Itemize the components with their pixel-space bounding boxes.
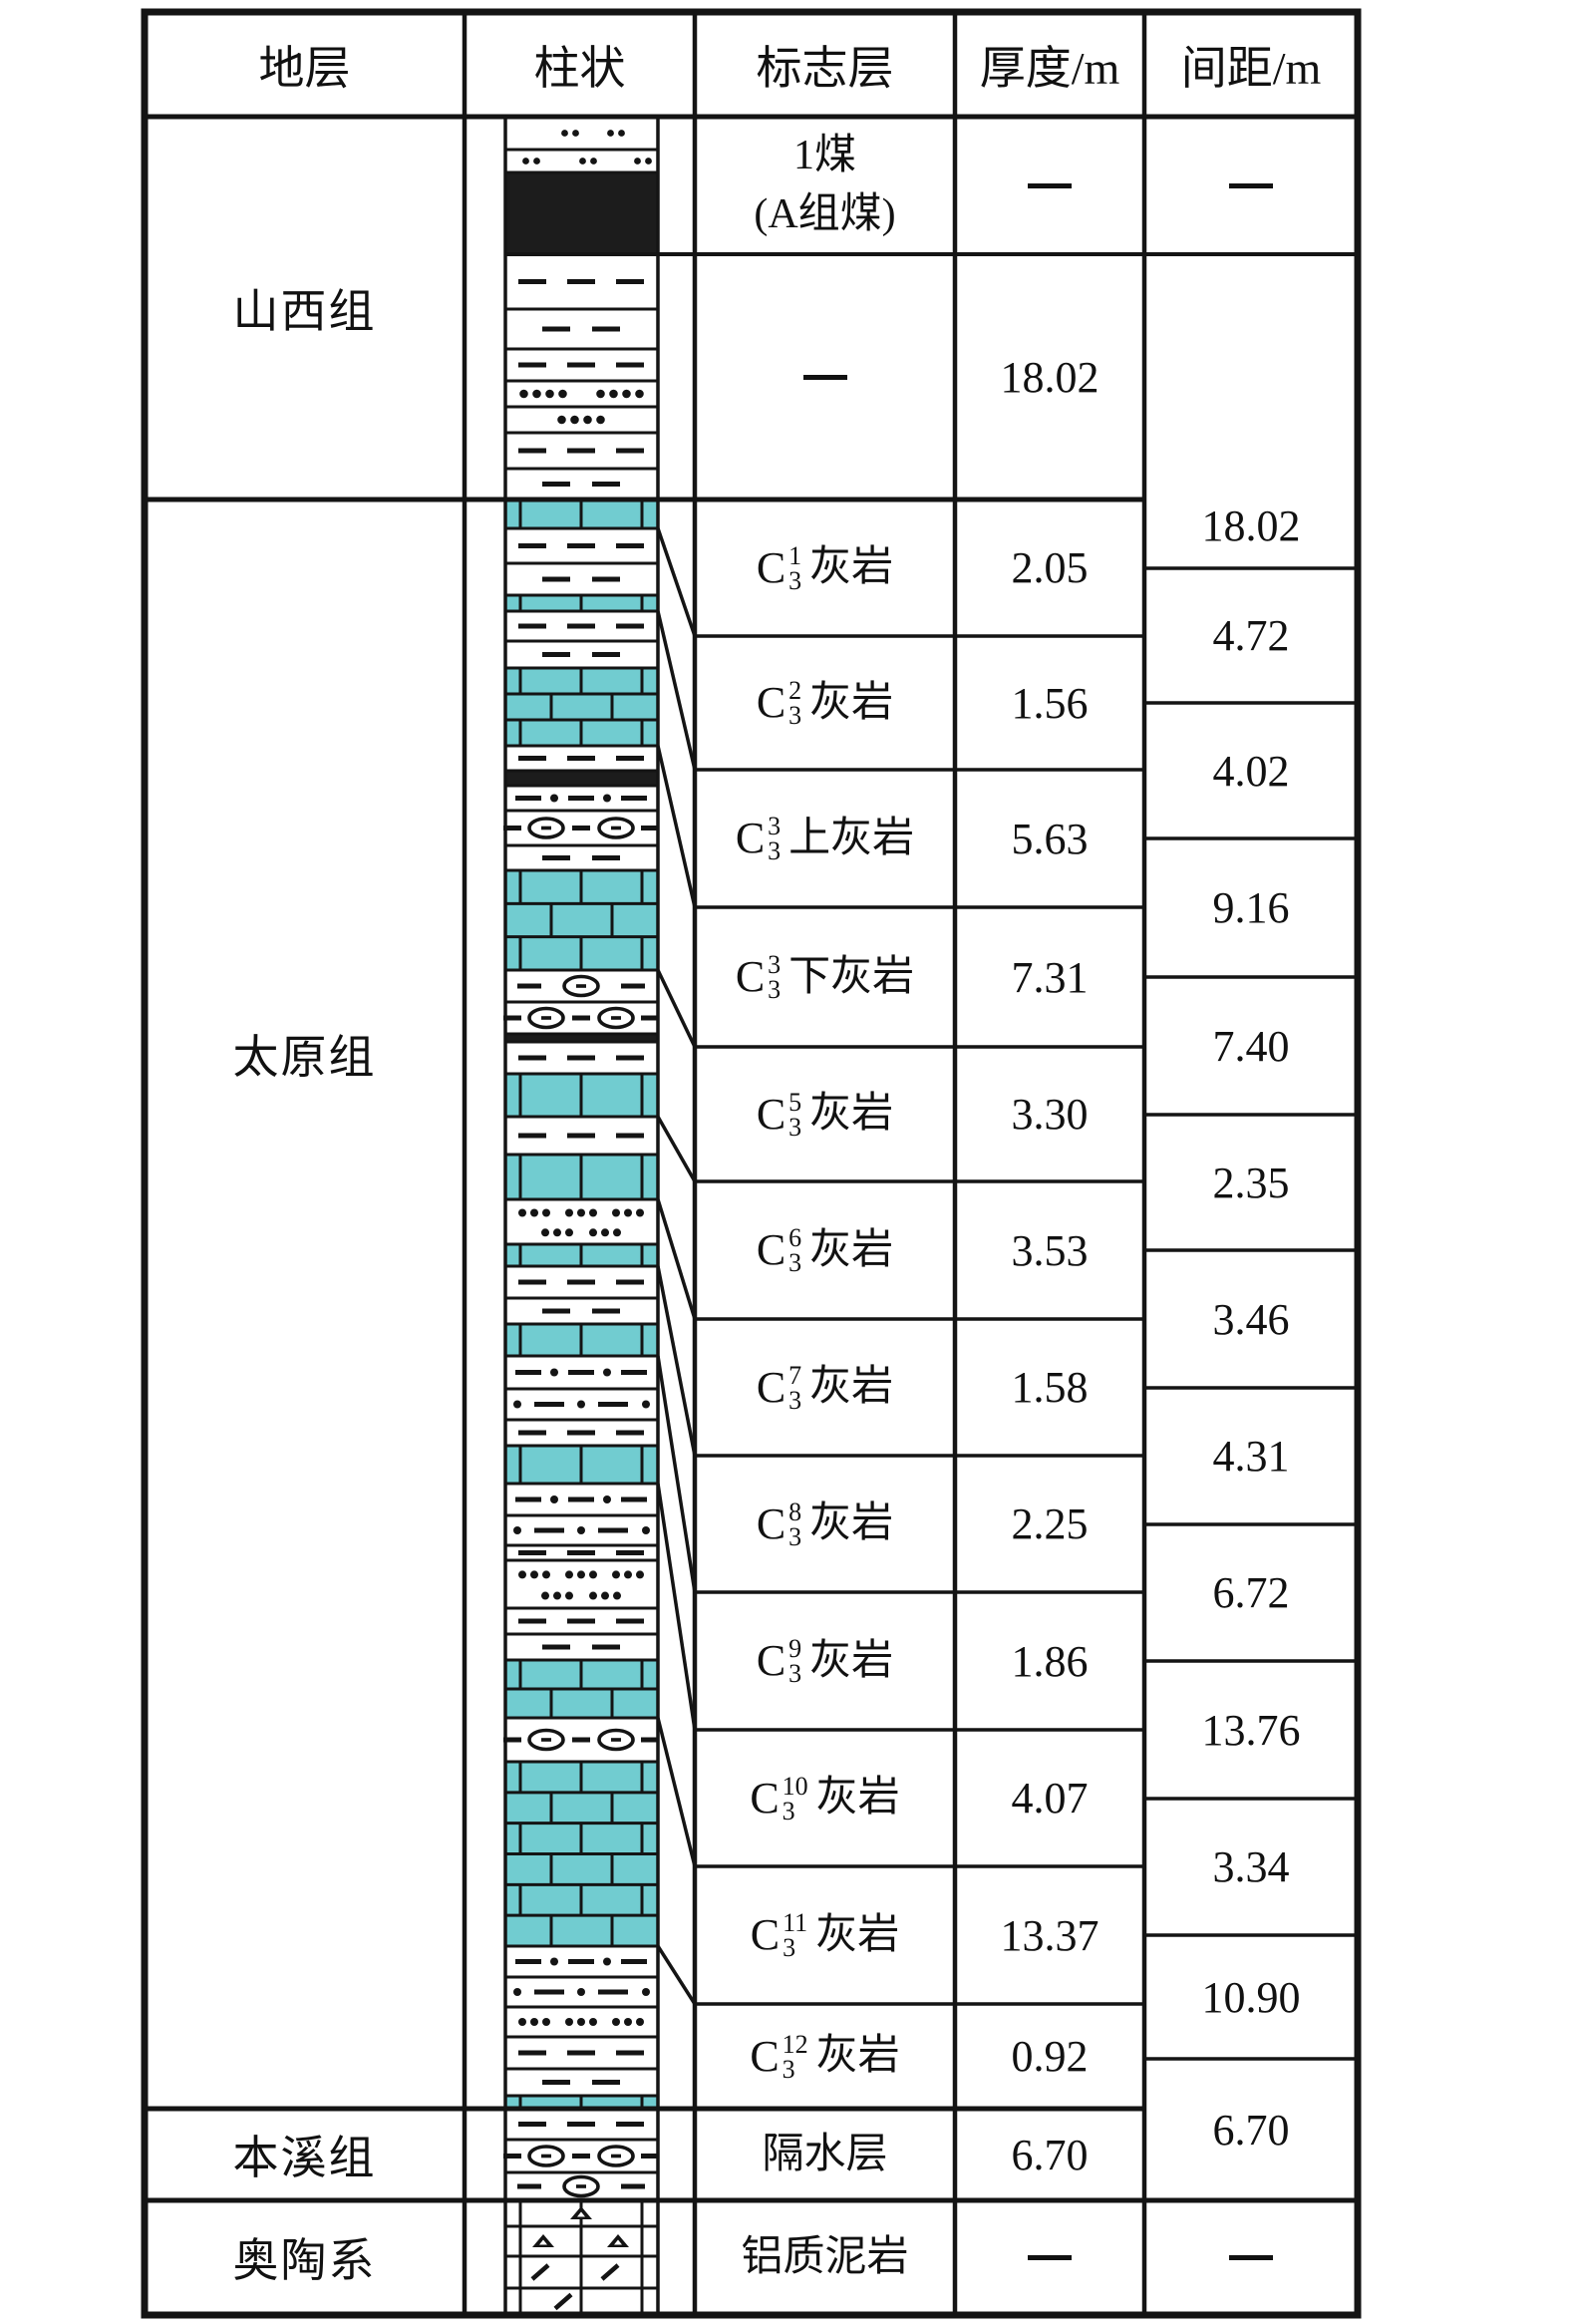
formation-label: 太原组	[145, 1014, 465, 1094]
thickness-value	[955, 117, 1144, 254]
thickness-value: 7.31	[955, 907, 1144, 1047]
spacing-value: 6.70	[1144, 2090, 1358, 2169]
thickness-value: 1.56	[955, 636, 1144, 770]
thickness-value: 2.25	[955, 1456, 1144, 1592]
spacing-value: 18.02	[1144, 486, 1358, 565]
spacing-value	[1144, 146, 1358, 225]
thickness-value	[955, 2200, 1144, 2315]
formation-label: 本溪组	[145, 2115, 465, 2194]
formation-label: 山西组	[145, 268, 465, 348]
spacing-value: 13.76	[1144, 1690, 1358, 1770]
thickness-value: 3.53	[955, 1181, 1144, 1319]
thickness-value: 1.86	[955, 1592, 1144, 1730]
marker-bed-cell: C113灰岩	[695, 1866, 955, 2004]
marker-bed-cell: C123灰岩	[695, 2004, 955, 2109]
thickness-value: 5.63	[955, 770, 1144, 907]
thickness-value: 0.92	[955, 2004, 1144, 2109]
marker-bed-cell	[695, 254, 955, 499]
spacing-value: 4.72	[1144, 596, 1358, 676]
thickness-value: 4.07	[955, 1730, 1144, 1866]
stratigraphic-column-figure: 地层 柱状 标志层 厚度/m 间距/m 山西组太原组本溪组奥陶系 1煤(A组煤)…	[0, 0, 1570, 2324]
spacing-value: 6.72	[1144, 1553, 1358, 1633]
thickness-value: 6.70	[955, 2109, 1144, 2200]
marker-bed-cell: 铝质泥岩	[695, 2200, 955, 2315]
header-marker-bed: 标志层	[695, 12, 955, 117]
marker-bed-cell: C83灰岩	[695, 1456, 955, 1592]
thickness-value: 1.58	[955, 1319, 1144, 1456]
thickness-value: 13.37	[955, 1866, 1144, 2004]
thickness-value: 2.05	[955, 499, 1144, 636]
marker-bed-cell: C33上灰岩	[695, 770, 955, 907]
marker-bed-cell: C73灰岩	[695, 1319, 955, 1456]
marker-bed-cell: 1煤(A组煤)	[695, 117, 955, 254]
spacing-value: 3.46	[1144, 1279, 1358, 1359]
marker-bed-cell: C23灰岩	[695, 636, 955, 770]
spacing-value: 2.35	[1144, 1143, 1358, 1222]
spacing-value: 3.34	[1144, 1827, 1358, 1907]
marker-bed-cell: C63灰岩	[695, 1181, 955, 1319]
marker-bed-cell: C93灰岩	[695, 1592, 955, 1730]
marker-bed-cell: C53灰岩	[695, 1047, 955, 1181]
marker-bed-cell: C33下灰岩	[695, 907, 955, 1047]
spacing-value: 4.02	[1144, 731, 1358, 811]
header-stratum: 地层	[145, 12, 465, 117]
spacing-value	[1144, 2218, 1358, 2298]
formation-label: 奥陶系	[145, 2217, 465, 2297]
thickness-value: 3.30	[955, 1047, 1144, 1181]
header-thickness: 厚度/m	[955, 12, 1144, 117]
header-spacing: 间距/m	[1144, 12, 1358, 117]
thickness-value: 18.02	[955, 254, 1144, 499]
marker-bed-cell: 隔水层	[695, 2109, 955, 2200]
spacing-value: 7.40	[1144, 1006, 1358, 1086]
spacing-value: 4.31	[1144, 1417, 1358, 1496]
marker-bed-cell: C13灰岩	[695, 499, 955, 636]
header-column: 柱状	[465, 12, 695, 117]
spacing-value: 10.90	[1144, 1957, 1358, 2037]
spacing-value: 9.16	[1144, 868, 1358, 948]
marker-bed-cell: C103灰岩	[695, 1730, 955, 1866]
